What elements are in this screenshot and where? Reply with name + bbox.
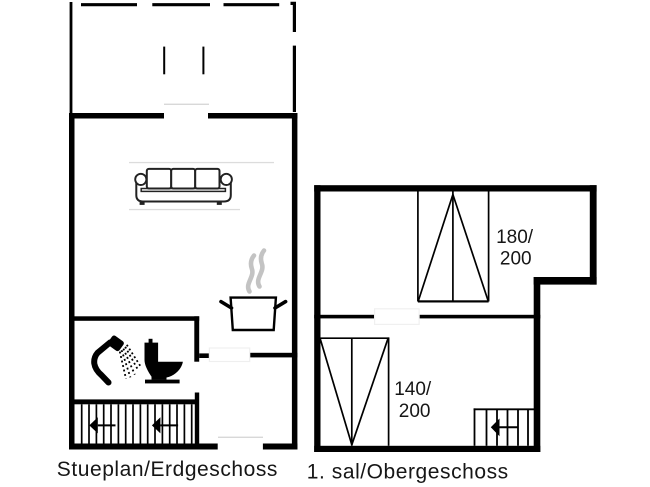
svg-text:Stueplan/Erdgeschoss: Stueplan/Erdgeschoss: [57, 458, 278, 481]
svg-text:140/: 140/: [394, 379, 432, 400]
svg-text:200: 200: [399, 401, 431, 422]
svg-text:180/: 180/: [496, 227, 534, 248]
svg-text:1. sal/Obergeschoss: 1. sal/Obergeschoss: [307, 461, 509, 484]
svg-text:200: 200: [500, 248, 532, 269]
